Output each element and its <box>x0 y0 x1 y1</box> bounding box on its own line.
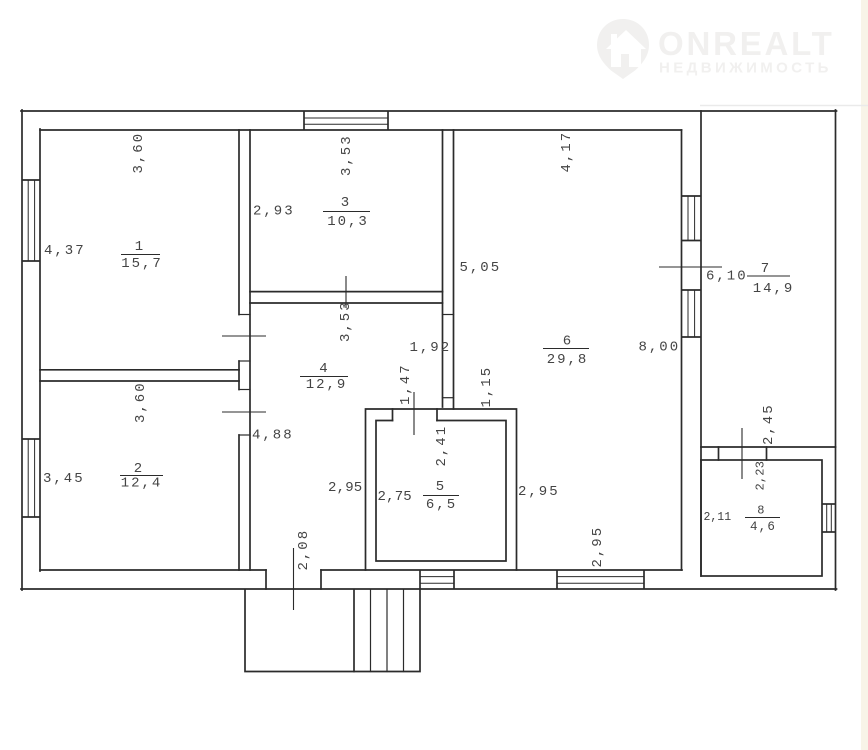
svg-text:29,8: 29,8 <box>547 352 589 368</box>
svg-text:2,11: 2,11 <box>704 511 732 524</box>
svg-text:2,95: 2,95 <box>590 526 606 568</box>
svg-text:2,95: 2,95 <box>518 484 560 500</box>
svg-text:3,45: 3,45 <box>43 471 85 487</box>
svg-text:4,6: 4,6 <box>750 520 776 534</box>
svg-text:2,41: 2,41 <box>434 425 450 467</box>
svg-text:1,15: 1,15 <box>479 366 495 408</box>
svg-text:8,00: 8,00 <box>639 340 681 356</box>
svg-text:2,95: 2,95 <box>328 480 362 496</box>
svg-text:3,53: 3,53 <box>339 134 355 176</box>
svg-text:1,92: 1,92 <box>410 340 452 356</box>
svg-text:6,5: 6,5 <box>426 497 457 513</box>
svg-text:4,17: 4,17 <box>559 131 575 173</box>
svg-text:8: 8 <box>757 504 764 518</box>
svg-text:5: 5 <box>436 479 446 495</box>
svg-text:ONREALT: ONREALT <box>658 25 835 62</box>
svg-text:14,9: 14,9 <box>753 281 795 297</box>
svg-text:3,53: 3,53 <box>338 300 354 342</box>
svg-text:НЕДВИЖИМОСТЬ: НЕДВИЖИМОСТЬ <box>659 60 832 77</box>
svg-text:2,08: 2,08 <box>296 529 312 571</box>
svg-text:2,45: 2,45 <box>761 403 777 445</box>
svg-text:3,60: 3,60 <box>133 381 149 423</box>
svg-text:7: 7 <box>761 261 771 277</box>
svg-text:2,75: 2,75 <box>378 489 412 505</box>
svg-text:6: 6 <box>563 334 573 350</box>
svg-text:2,93: 2,93 <box>253 204 295 220</box>
svg-text:4: 4 <box>319 361 329 377</box>
svg-text:1: 1 <box>135 239 145 255</box>
svg-text:3,60: 3,60 <box>131 132 147 174</box>
svg-text:12,4: 12,4 <box>121 476 163 492</box>
svg-text:1,47: 1,47 <box>398 363 414 405</box>
svg-text:2,23: 2,23 <box>754 461 768 491</box>
svg-text:12,9: 12,9 <box>306 377 348 393</box>
svg-text:4,88: 4,88 <box>252 428 294 444</box>
svg-text:10,3: 10,3 <box>327 214 369 230</box>
svg-text:4,37: 4,37 <box>44 243 86 259</box>
svg-text:15,7: 15,7 <box>121 256 163 272</box>
svg-text:6,10: 6,10 <box>706 269 748 285</box>
svg-text:3: 3 <box>341 195 351 211</box>
svg-text:5,05: 5,05 <box>460 260 502 276</box>
